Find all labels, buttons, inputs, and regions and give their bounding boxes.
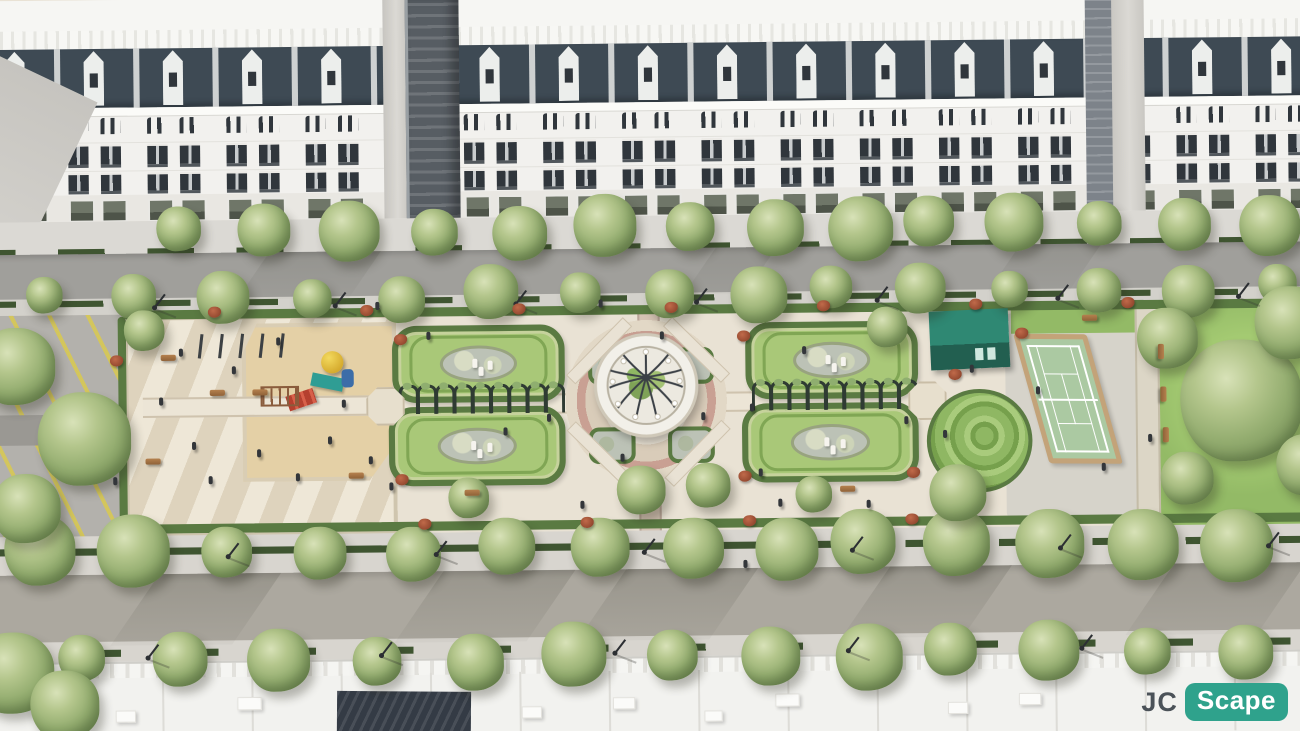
street-lamp (1266, 543, 1271, 548)
logo-badge: Scape (1185, 683, 1288, 721)
red-shrub (969, 299, 982, 310)
pedestrian (328, 436, 332, 444)
street-lamp (333, 303, 338, 308)
pedestrian (232, 366, 236, 374)
pedestrian (296, 473, 300, 481)
pedestrian (342, 400, 346, 408)
pedestrian (904, 416, 908, 424)
street-lamp (146, 655, 151, 660)
pedestrian (1102, 463, 1106, 471)
street-lamp (850, 548, 855, 553)
red-shrub (817, 300, 830, 311)
pedestrian (257, 449, 261, 457)
scene-tilt-wrapper (0, 0, 1300, 731)
aerial-park-render: JC Scape (0, 0, 1300, 731)
red-shrub (581, 517, 594, 528)
pedestrian (620, 454, 624, 462)
pedestrian (580, 501, 584, 509)
bench (1163, 427, 1169, 442)
pedestrian (375, 302, 379, 310)
red-shrub (738, 471, 751, 482)
red-shrub (665, 302, 678, 313)
red-shrub (110, 355, 123, 366)
red-shrub (948, 369, 961, 380)
bench (840, 486, 855, 492)
pedestrian (159, 397, 163, 405)
bench (349, 473, 364, 479)
pedestrian (276, 337, 280, 345)
bench (252, 389, 267, 395)
pedestrian (209, 476, 213, 484)
street-lamp (1055, 296, 1060, 301)
pedestrian (750, 403, 754, 411)
pedestrian (1036, 386, 1040, 394)
street-lamp (434, 552, 439, 557)
pedestrian (867, 500, 871, 508)
red-shrub (418, 519, 431, 530)
pedestrian (802, 346, 806, 354)
logo-prefix: JC (1141, 687, 1178, 718)
pedestrian (970, 365, 974, 373)
bench (161, 355, 176, 361)
pedestrian (759, 468, 763, 476)
red-shrub (907, 467, 920, 478)
street-lamp (846, 648, 851, 653)
street-lamp (694, 300, 699, 305)
pedestrian (389, 482, 393, 490)
street-lamp (612, 651, 617, 656)
pedestrian (503, 427, 507, 435)
street-lamp (642, 550, 647, 555)
bench (1082, 315, 1097, 321)
red-shrub (512, 303, 525, 314)
red-shrub (394, 334, 407, 345)
pedestrian (179, 349, 183, 357)
red-shrub (208, 307, 221, 318)
pedestrian (660, 331, 664, 339)
red-shrub (737, 330, 750, 341)
pedestrian (778, 499, 782, 507)
street-lamp (875, 298, 880, 303)
pedestrian (1148, 434, 1152, 442)
pedestrian (426, 332, 430, 340)
pedestrian (369, 456, 373, 464)
bench (210, 390, 225, 396)
bench (1158, 344, 1164, 359)
pedestrian (547, 414, 551, 422)
street-lamp (1079, 646, 1084, 651)
red-shrub (1121, 297, 1134, 308)
street-lamp (1236, 294, 1241, 299)
pedestrian (192, 442, 196, 450)
bench (465, 490, 480, 496)
pedestrian (701, 412, 705, 420)
watermark-logo: JC Scape (1141, 683, 1288, 721)
red-shrub (360, 305, 373, 316)
pedestrian (743, 560, 747, 568)
red-shrub (905, 513, 918, 524)
bench (1160, 386, 1166, 401)
bench (145, 458, 160, 464)
red-shrub (743, 515, 756, 526)
street-lamp (1058, 545, 1063, 550)
pedestrian (113, 477, 117, 485)
street-lamp (379, 653, 384, 658)
pedestrian (943, 430, 947, 438)
pedestrian (599, 300, 603, 308)
red-shrub (1015, 328, 1028, 339)
red-shrub (395, 474, 408, 485)
street-furniture-layer (0, 0, 1300, 731)
street-lamp (152, 305, 157, 310)
street-lamp (226, 554, 231, 559)
